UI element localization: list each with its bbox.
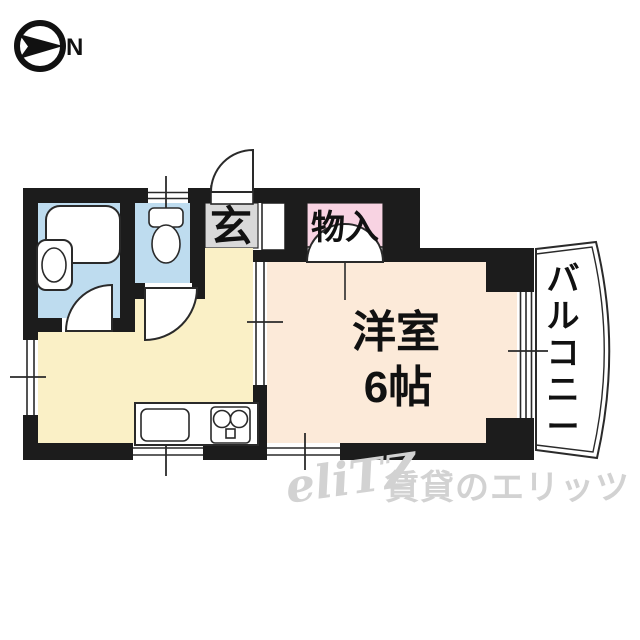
wall-segment [23,188,38,340]
main-room-label-line2: 6帖 [364,363,432,412]
compass: N [17,23,83,69]
stove-grill [226,429,235,438]
wall-segment [23,318,62,332]
kitchen-sink [141,409,189,441]
entrance-door-arc [211,150,253,192]
stove-burner-left [214,411,231,428]
wall-segment [120,188,135,332]
wall-segment [253,250,307,262]
genkan-label: 玄 [210,203,252,250]
storage-label: 物入 [311,209,379,247]
window-toilet [148,188,188,203]
toilet-bowl [152,225,180,263]
wall-segment [486,418,534,443]
floor-plan-svg: 玄 物入 洋室 6帖 バルコニー N eliTZ 賃貸のエリッツ [0,0,640,640]
floor-plan-canvas: 玄 物入 洋室 6帖 バルコニー N eliTZ 賃貸のエリッツ [0,0,640,640]
wall-segment [285,188,307,250]
toilet-tank [149,208,183,227]
wall-segment [132,283,145,299]
shoe-cabinet [262,203,285,250]
washbasin-bowl [42,248,66,282]
wall-segment [23,443,133,460]
wall-segment [112,318,135,332]
stove-burner-right [231,411,248,428]
wall-segment [190,188,205,297]
balcony-label: バルコニー [547,260,580,445]
watermark-text: 賃貸のエリッツ [384,469,630,507]
sliding-partition [253,262,267,385]
compass-north-label: N [66,34,83,61]
wall-segment [518,262,534,292]
main-room-label-line1: 洋室 [352,307,440,357]
